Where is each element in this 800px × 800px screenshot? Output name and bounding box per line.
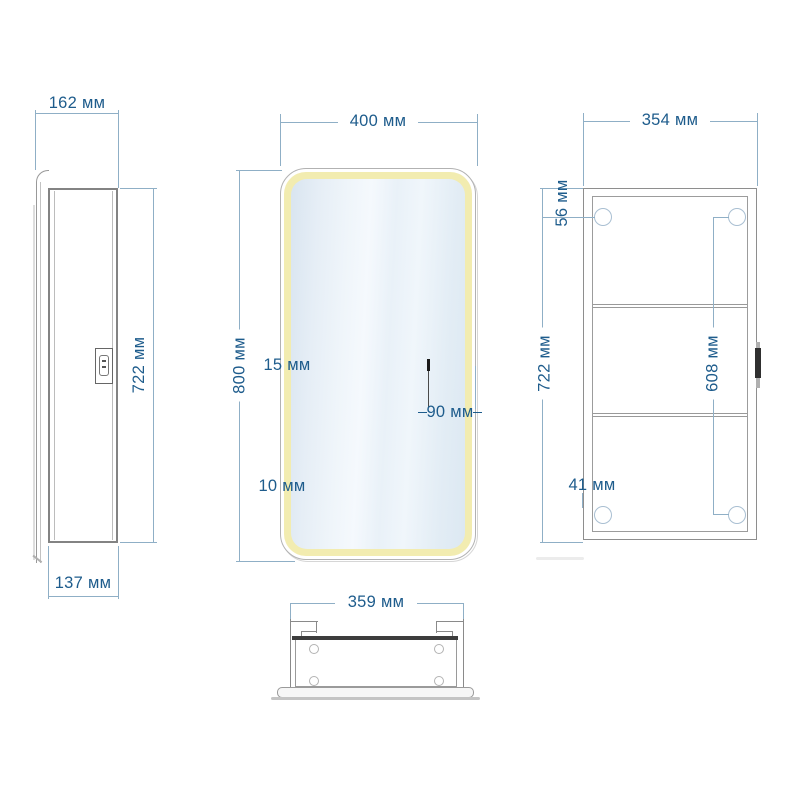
screw-hole-bottom-right xyxy=(434,676,444,686)
screw-hole-top-right xyxy=(434,644,444,654)
bracket-left-top xyxy=(291,621,318,622)
screw-hole-top-left xyxy=(309,644,319,654)
ext-line xyxy=(463,603,464,619)
ext-line xyxy=(290,603,291,619)
dim-label-top-width: 359 мм xyxy=(335,594,417,611)
bracket-right-top xyxy=(436,621,463,622)
bracket-left-outer xyxy=(290,619,291,688)
cabinet-top-body xyxy=(295,640,457,687)
screw-hole-bottom-left xyxy=(309,676,319,686)
bracket-right-lip xyxy=(437,631,453,632)
mirror-plate-base xyxy=(271,697,480,700)
technical-drawing: 162 мм 722 мм 137 мм 400 мм 800 мм 15 мм… xyxy=(0,0,800,800)
bracket-right-outer xyxy=(463,619,464,688)
top-view: 359 мм xyxy=(0,0,800,800)
bracket-left-lip xyxy=(301,631,317,632)
